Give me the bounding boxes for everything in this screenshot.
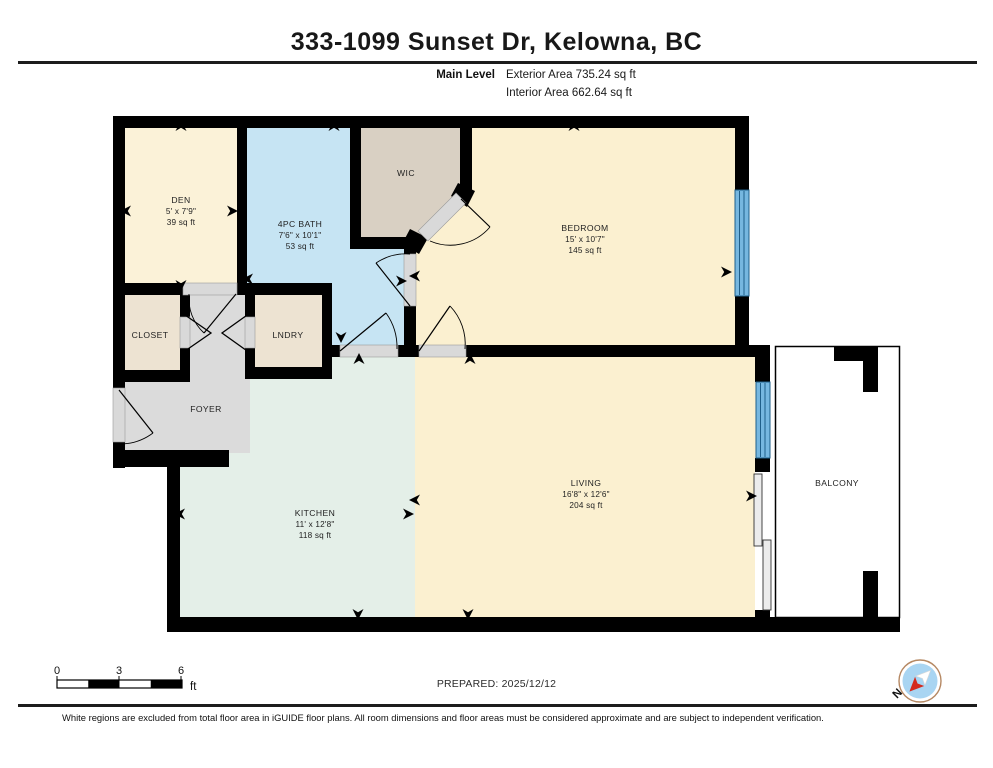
living-area: 204 sq ft (569, 501, 603, 510)
floorplan-page: 333-1099 Sunset Dr, Kelowna, BC Main Lev… (0, 0, 993, 768)
balcony-label: BALCONY (815, 478, 859, 488)
bath-dims: 7'6" x 10'1" (279, 231, 322, 240)
floorplan-drawing: DEN 5' x 7'9" 39 sq ft 4PC BATH 7'6" x 1… (0, 0, 993, 768)
den-name: DEN (171, 195, 190, 205)
kitchen-name: KITCHEN (295, 508, 336, 518)
bedroom-name: BEDROOM (561, 223, 608, 233)
scale-tick-6: 6 (178, 665, 184, 677)
bedroom-window (735, 190, 749, 296)
closet-label: CLOSET (132, 330, 169, 340)
room-den (118, 116, 242, 295)
bath-name: 4PC BATH (278, 219, 323, 229)
disclaimer-text: White regions are excluded from total fl… (62, 712, 932, 723)
footer-divider (18, 704, 977, 707)
bedroom-area: 145 sq ft (568, 246, 602, 255)
kitchen-label: KITCHEN 11' x 12'8" 118 sq ft (295, 508, 336, 540)
den-dims: 5' x 7'9" (166, 207, 196, 216)
scale-tick-0: 0 (54, 665, 60, 677)
foyer-label: FOYER (190, 404, 222, 414)
laundry-label: LNDRY (273, 330, 304, 340)
living-name: LIVING (571, 478, 602, 488)
bedroom-label: BEDROOM 15' x 10'7" 145 sq ft (561, 223, 608, 255)
bath-area: 53 sq ft (286, 242, 315, 251)
prepared-date: PREPARED: 2025/12/12 (0, 678, 993, 690)
scale-tick-3: 3 (116, 665, 122, 677)
kitchen-area: 118 sq ft (299, 531, 332, 540)
den-area: 39 sq ft (167, 218, 196, 227)
living-window (756, 382, 770, 458)
balcony-slider-door (754, 472, 771, 610)
bedroom-dims: 15' x 10'7" (565, 235, 605, 244)
living-dims: 16'8" x 12'6" (562, 490, 610, 499)
wic-label: WIC (397, 168, 415, 178)
kitchen-dims: 11' x 12'8" (295, 520, 334, 529)
